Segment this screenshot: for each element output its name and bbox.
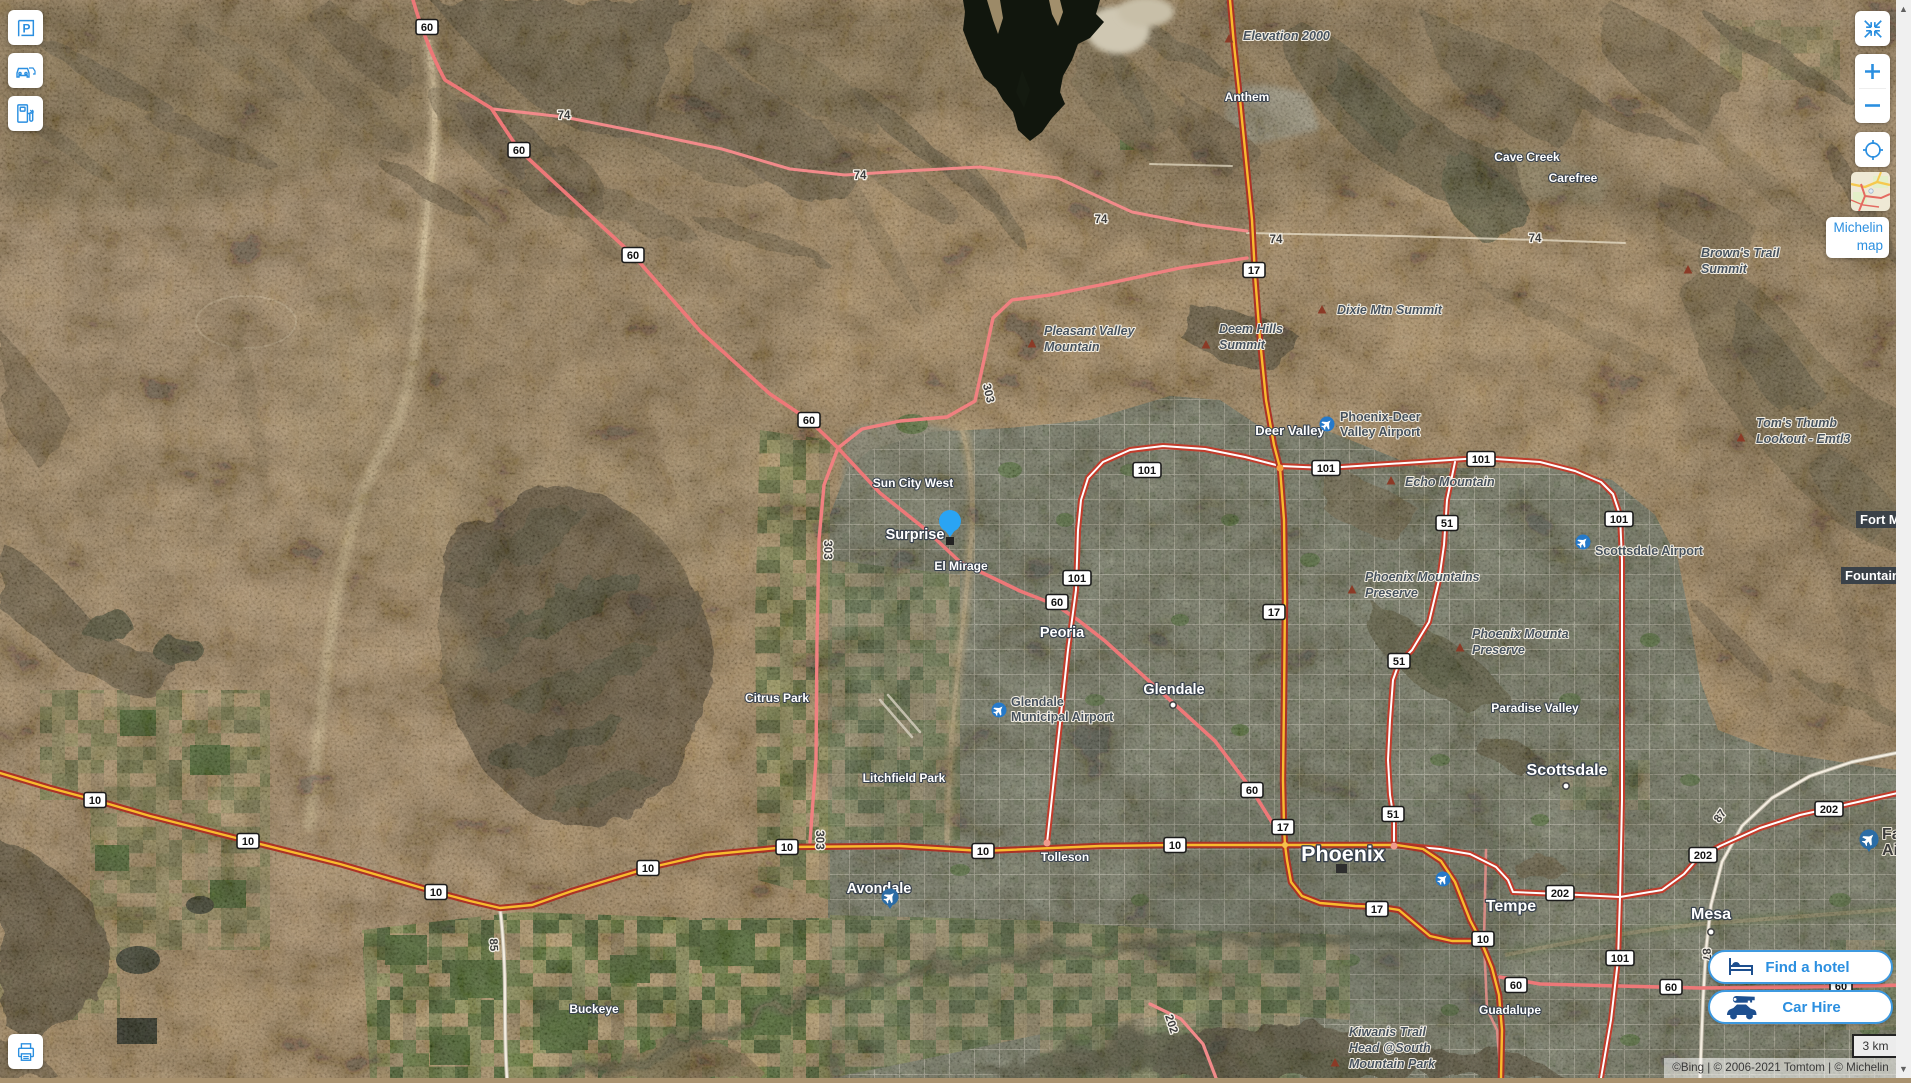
svg-text:Mountain: Mountain	[1044, 340, 1100, 354]
svg-text:Buckeye: Buckeye	[569, 1002, 619, 1016]
svg-text:60: 60	[421, 22, 433, 34]
svg-text:202: 202	[1694, 850, 1712, 862]
svg-text:Cave Creek: Cave Creek	[1494, 150, 1560, 164]
svg-text:74: 74	[558, 110, 571, 122]
svg-text:74: 74	[854, 170, 867, 182]
svg-text:17: 17	[1371, 904, 1383, 916]
svg-text:Mountain Park: Mountain Park	[1349, 1057, 1436, 1071]
svg-text:60: 60	[1510, 980, 1522, 992]
svg-text:P: P	[22, 21, 30, 35]
svg-text:51: 51	[1441, 518, 1453, 530]
svg-text:Carefree: Carefree	[1549, 171, 1598, 185]
svg-text:Glendale: Glendale	[1143, 682, 1204, 698]
svg-text:Deer Valley: Deer Valley	[1255, 423, 1325, 438]
svg-text:Phoenix-Deer: Phoenix-Deer	[1340, 410, 1421, 424]
svg-text:Head @South: Head @South	[1349, 1041, 1431, 1055]
svg-text:101: 101	[1610, 514, 1628, 526]
svg-text:60: 60	[1665, 982, 1677, 994]
svg-text:Anthem: Anthem	[1225, 90, 1270, 104]
svg-text:Elevation 2000: Elevation 2000	[1243, 29, 1330, 43]
svg-text:Litchfield Park: Litchfield Park	[863, 771, 946, 785]
svg-text:10: 10	[977, 846, 989, 858]
svg-text:10: 10	[642, 863, 654, 875]
svg-text:Brown's Trail: Brown's Trail	[1701, 246, 1780, 260]
svg-text:10: 10	[89, 795, 101, 807]
svg-text:101: 101	[1317, 463, 1335, 475]
svg-text:Deem Hills: Deem Hills	[1219, 322, 1283, 336]
svg-text:Sun City West: Sun City West	[873, 476, 953, 490]
svg-text:Phoenix: Phoenix	[1301, 842, 1385, 866]
svg-text:74: 74	[1095, 214, 1108, 226]
svg-text:101: 101	[1068, 573, 1086, 585]
svg-text:10: 10	[1169, 840, 1181, 852]
svg-text:51: 51	[1387, 809, 1399, 821]
svg-text:Surprise: Surprise	[886, 527, 945, 543]
svg-text:10: 10	[430, 887, 442, 899]
svg-text:Preserve: Preserve	[1472, 643, 1525, 657]
svg-text:10: 10	[242, 836, 254, 848]
svg-text:Tom's Thumb: Tom's Thumb	[1756, 416, 1837, 430]
svg-text:101: 101	[1611, 953, 1629, 965]
svg-text:Avondale: Avondale	[847, 881, 912, 897]
svg-text:60: 60	[513, 145, 525, 157]
svg-text:85: 85	[487, 938, 500, 952]
svg-text:Dixie Mtn Summit: Dixie Mtn Summit	[1337, 303, 1443, 317]
svg-text:Guadalupe: Guadalupe	[1479, 1003, 1541, 1017]
svg-text:Valley Airport: Valley Airport	[1340, 425, 1421, 439]
svg-text:Summit: Summit	[1219, 338, 1266, 352]
svg-text:Glendale: Glendale	[1011, 695, 1064, 709]
svg-text:101: 101	[1472, 454, 1490, 466]
svg-text:10: 10	[781, 842, 793, 854]
svg-text:17: 17	[1268, 607, 1280, 619]
svg-text:202: 202	[1551, 888, 1569, 900]
svg-text:Phoenix Mounta: Phoenix Mounta	[1472, 627, 1569, 641]
svg-text:74: 74	[1529, 233, 1542, 245]
svg-text:El Mirage: El Mirage	[934, 559, 988, 573]
svg-text:Kiwanis Trail: Kiwanis Trail	[1349, 1025, 1426, 1039]
svg-text:Paradise Valley: Paradise Valley	[1491, 701, 1579, 715]
svg-text:Tolleson: Tolleson	[1041, 850, 1089, 864]
svg-text:Lookout - Emtl3: Lookout - Emtl3	[1756, 432, 1850, 446]
svg-text:Summit: Summit	[1701, 262, 1748, 276]
svg-text:Echo Mountain: Echo Mountain	[1405, 475, 1495, 489]
svg-text:Mesa: Mesa	[1691, 906, 1731, 923]
svg-text:Peoria: Peoria	[1040, 625, 1085, 641]
svg-text:Tempe: Tempe	[1486, 898, 1536, 915]
svg-text:202: 202	[1820, 804, 1838, 816]
svg-text:60: 60	[1246, 785, 1258, 797]
svg-text:Pleasant Valley: Pleasant Valley	[1044, 324, 1136, 338]
svg-text:Municipal Airport: Municipal Airport	[1011, 710, 1114, 724]
svg-text:Phoenix Mountains: Phoenix Mountains	[1365, 570, 1480, 584]
svg-text:17: 17	[1248, 265, 1260, 277]
svg-text:Preserve: Preserve	[1365, 586, 1418, 600]
svg-text:60: 60	[1051, 597, 1063, 609]
svg-text:10: 10	[1477, 934, 1489, 946]
svg-text:101: 101	[1138, 465, 1156, 477]
svg-text:17: 17	[1277, 822, 1289, 834]
svg-text:Citrus Park: Citrus Park	[745, 691, 809, 705]
svg-text:303: 303	[813, 830, 825, 849]
svg-text:303: 303	[821, 540, 833, 559]
svg-text:74: 74	[1270, 234, 1283, 246]
svg-text:51: 51	[1393, 656, 1405, 668]
svg-text:Scottsdale Airport: Scottsdale Airport	[1595, 544, 1704, 558]
svg-text:60: 60	[803, 415, 815, 427]
svg-text:Scottsdale: Scottsdale	[1527, 762, 1608, 779]
svg-text:60: 60	[627, 250, 639, 262]
